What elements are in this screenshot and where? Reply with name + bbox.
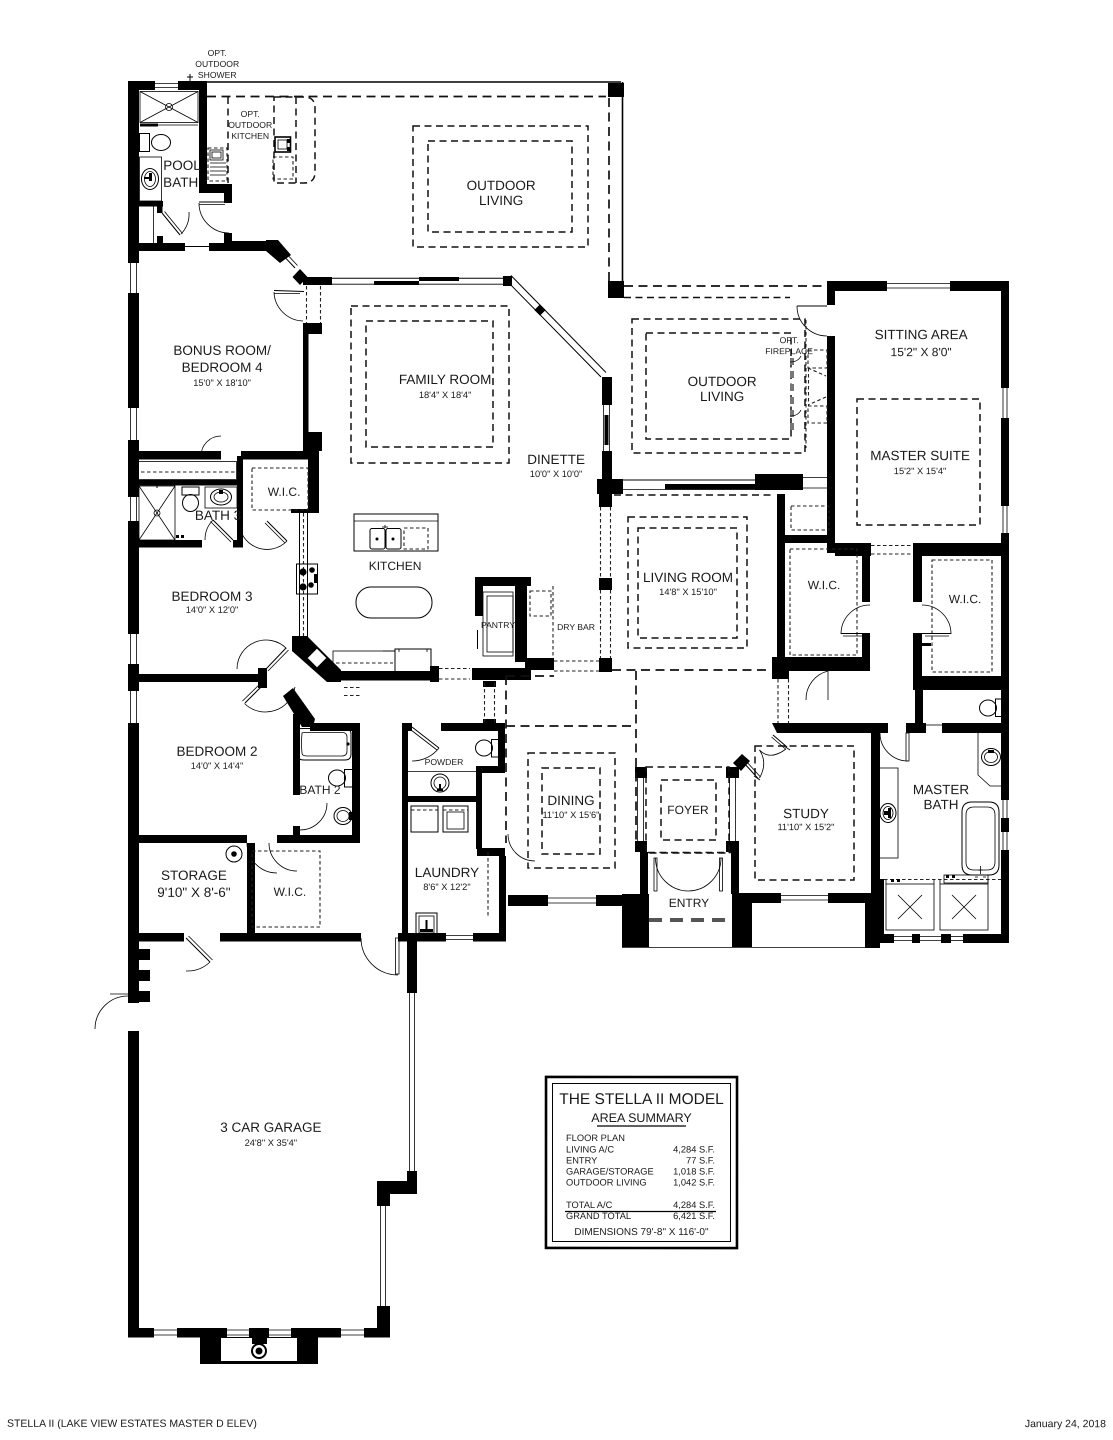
svg-text:ENTRY: ENTRY xyxy=(566,1155,597,1165)
svg-text:OUTDOOR: OUTDOOR xyxy=(688,374,757,389)
svg-text:FOYER: FOYER xyxy=(667,803,709,817)
svg-text:BATH 2: BATH 2 xyxy=(299,783,340,797)
svg-text:GRAND TOTAL: GRAND TOTAL xyxy=(566,1211,631,1221)
svg-text:4,284 S.F.: 4,284 S.F. xyxy=(673,1200,715,1210)
svg-text:15'2" X 15'4": 15'2" X 15'4" xyxy=(894,466,947,476)
svg-text:OUTDOOR: OUTDOOR xyxy=(195,59,239,69)
svg-text:SHOWER: SHOWER xyxy=(198,70,237,80)
svg-text:OUTDOOR LIVING: OUTDOOR LIVING xyxy=(566,1177,647,1187)
svg-text:KITCHEN: KITCHEN xyxy=(369,559,422,573)
svg-text:POOL: POOL xyxy=(163,158,201,173)
svg-text:LAUNDRY: LAUNDRY xyxy=(415,865,479,880)
svg-text:THE STELLA II MODEL: THE STELLA II MODEL xyxy=(559,1091,724,1108)
svg-text:10'0" X 10'0": 10'0" X 10'0" xyxy=(530,469,583,479)
svg-text:W.I.C.: W.I.C. xyxy=(268,485,301,499)
svg-text:W.I.C.: W.I.C. xyxy=(949,592,982,606)
svg-text:BEDROOM 2: BEDROOM 2 xyxy=(176,744,257,759)
svg-text:4,284 S.F.: 4,284 S.F. xyxy=(673,1145,715,1155)
svg-text:DINETTE: DINETTE xyxy=(527,452,585,467)
svg-text:3 CAR GARAGE: 3 CAR GARAGE xyxy=(220,1120,321,1135)
svg-text:W.I.C.: W.I.C. xyxy=(274,885,307,899)
svg-text:STORAGE: STORAGE xyxy=(161,868,227,883)
svg-text:POWDER: POWDER xyxy=(425,757,464,767)
svg-text:FLOOR PLAN: FLOOR PLAN xyxy=(566,1133,625,1143)
svg-text:15'2" X 8'0": 15'2" X 8'0" xyxy=(891,345,952,359)
svg-text:TOTAL A/C: TOTAL A/C xyxy=(566,1200,613,1210)
svg-text:DIMENSIONS 79'-8" X 116'-0": DIMENSIONS 79'-8" X 116'-0" xyxy=(574,1227,709,1238)
svg-text:OPT.: OPT. xyxy=(241,109,260,119)
svg-text:MASTER SUITE: MASTER SUITE xyxy=(870,448,970,463)
svg-text:AREA SUMMARY: AREA SUMMARY xyxy=(591,1111,692,1125)
svg-text:OUTDOOR: OUTDOOR xyxy=(467,178,536,193)
svg-text:DINING: DINING xyxy=(547,793,594,808)
svg-text:1,042 S.F.: 1,042 S.F. xyxy=(673,1178,715,1188)
svg-text:W.I.C.: W.I.C. xyxy=(808,578,841,592)
svg-text:BATH: BATH xyxy=(923,797,958,812)
svg-text:14'8" X 15'10": 14'8" X 15'10" xyxy=(659,587,717,597)
svg-text:BEDROOM 3: BEDROOM 3 xyxy=(172,589,253,604)
svg-text:LIVING: LIVING xyxy=(700,389,744,404)
svg-text:9'10" X 8'-6": 9'10" X 8'-6" xyxy=(157,885,230,900)
svg-text:FAMILY ROOM: FAMILY ROOM xyxy=(399,372,492,387)
svg-text:14'0" X 14'4": 14'0" X 14'4" xyxy=(191,761,244,771)
svg-text:SITTING AREA: SITTING AREA xyxy=(875,327,968,342)
svg-text:STUDY: STUDY xyxy=(783,806,829,821)
svg-text:24'8" X 35'4": 24'8" X 35'4" xyxy=(245,1138,298,1148)
svg-text:11'10" X 15'6": 11'10" X 15'6" xyxy=(542,810,599,820)
svg-text:OPT.: OPT. xyxy=(208,48,227,58)
svg-text:OUTDOOR: OUTDOOR xyxy=(228,120,272,130)
svg-text:DRY BAR: DRY BAR xyxy=(557,622,595,632)
svg-text:6,421 S.F.: 6,421 S.F. xyxy=(673,1211,715,1221)
svg-text:14'0" X 12'0": 14'0" X 12'0" xyxy=(186,605,239,615)
svg-text:77 S.F.: 77 S.F. xyxy=(686,1156,715,1166)
svg-text:STELLA II (LAKE VIEW ESTATES M: STELLA II (LAKE VIEW ESTATES MASTER D EL… xyxy=(7,1418,257,1430)
svg-text:LIVING ROOM: LIVING ROOM xyxy=(643,570,733,585)
svg-text:BEDROOM 4: BEDROOM 4 xyxy=(182,360,264,375)
svg-text:1,018 S.F.: 1,018 S.F. xyxy=(673,1167,715,1177)
svg-text:PANTRY: PANTRY xyxy=(481,620,515,630)
svg-text:January 24, 2018: January 24, 2018 xyxy=(1025,1418,1106,1430)
svg-text:MASTER: MASTER xyxy=(913,782,970,797)
svg-text:GARAGE/STORAGE: GARAGE/STORAGE xyxy=(566,1166,654,1176)
svg-text:8'6" X 12'2": 8'6" X 12'2" xyxy=(423,882,470,892)
svg-text:11'10" X 15'2": 11'10" X 15'2" xyxy=(777,822,834,832)
svg-text:LIVING: LIVING xyxy=(479,193,523,208)
svg-text:ENTRY: ENTRY xyxy=(669,896,709,910)
svg-text:BATH: BATH xyxy=(163,175,198,190)
svg-text:BATH 3: BATH 3 xyxy=(195,508,241,523)
svg-text:LIVING A/C: LIVING A/C xyxy=(566,1144,614,1154)
svg-text:15'0" X 18'10": 15'0" X 18'10" xyxy=(193,378,251,388)
svg-text:OPT.: OPT. xyxy=(780,335,799,345)
svg-text:KITCHEN: KITCHEN xyxy=(231,131,269,141)
svg-text:18'4" X 18'4": 18'4" X 18'4" xyxy=(419,390,472,400)
svg-text:BONUS ROOM/: BONUS ROOM/ xyxy=(173,343,271,358)
svg-text:FIREPLACE: FIREPLACE xyxy=(765,346,813,356)
